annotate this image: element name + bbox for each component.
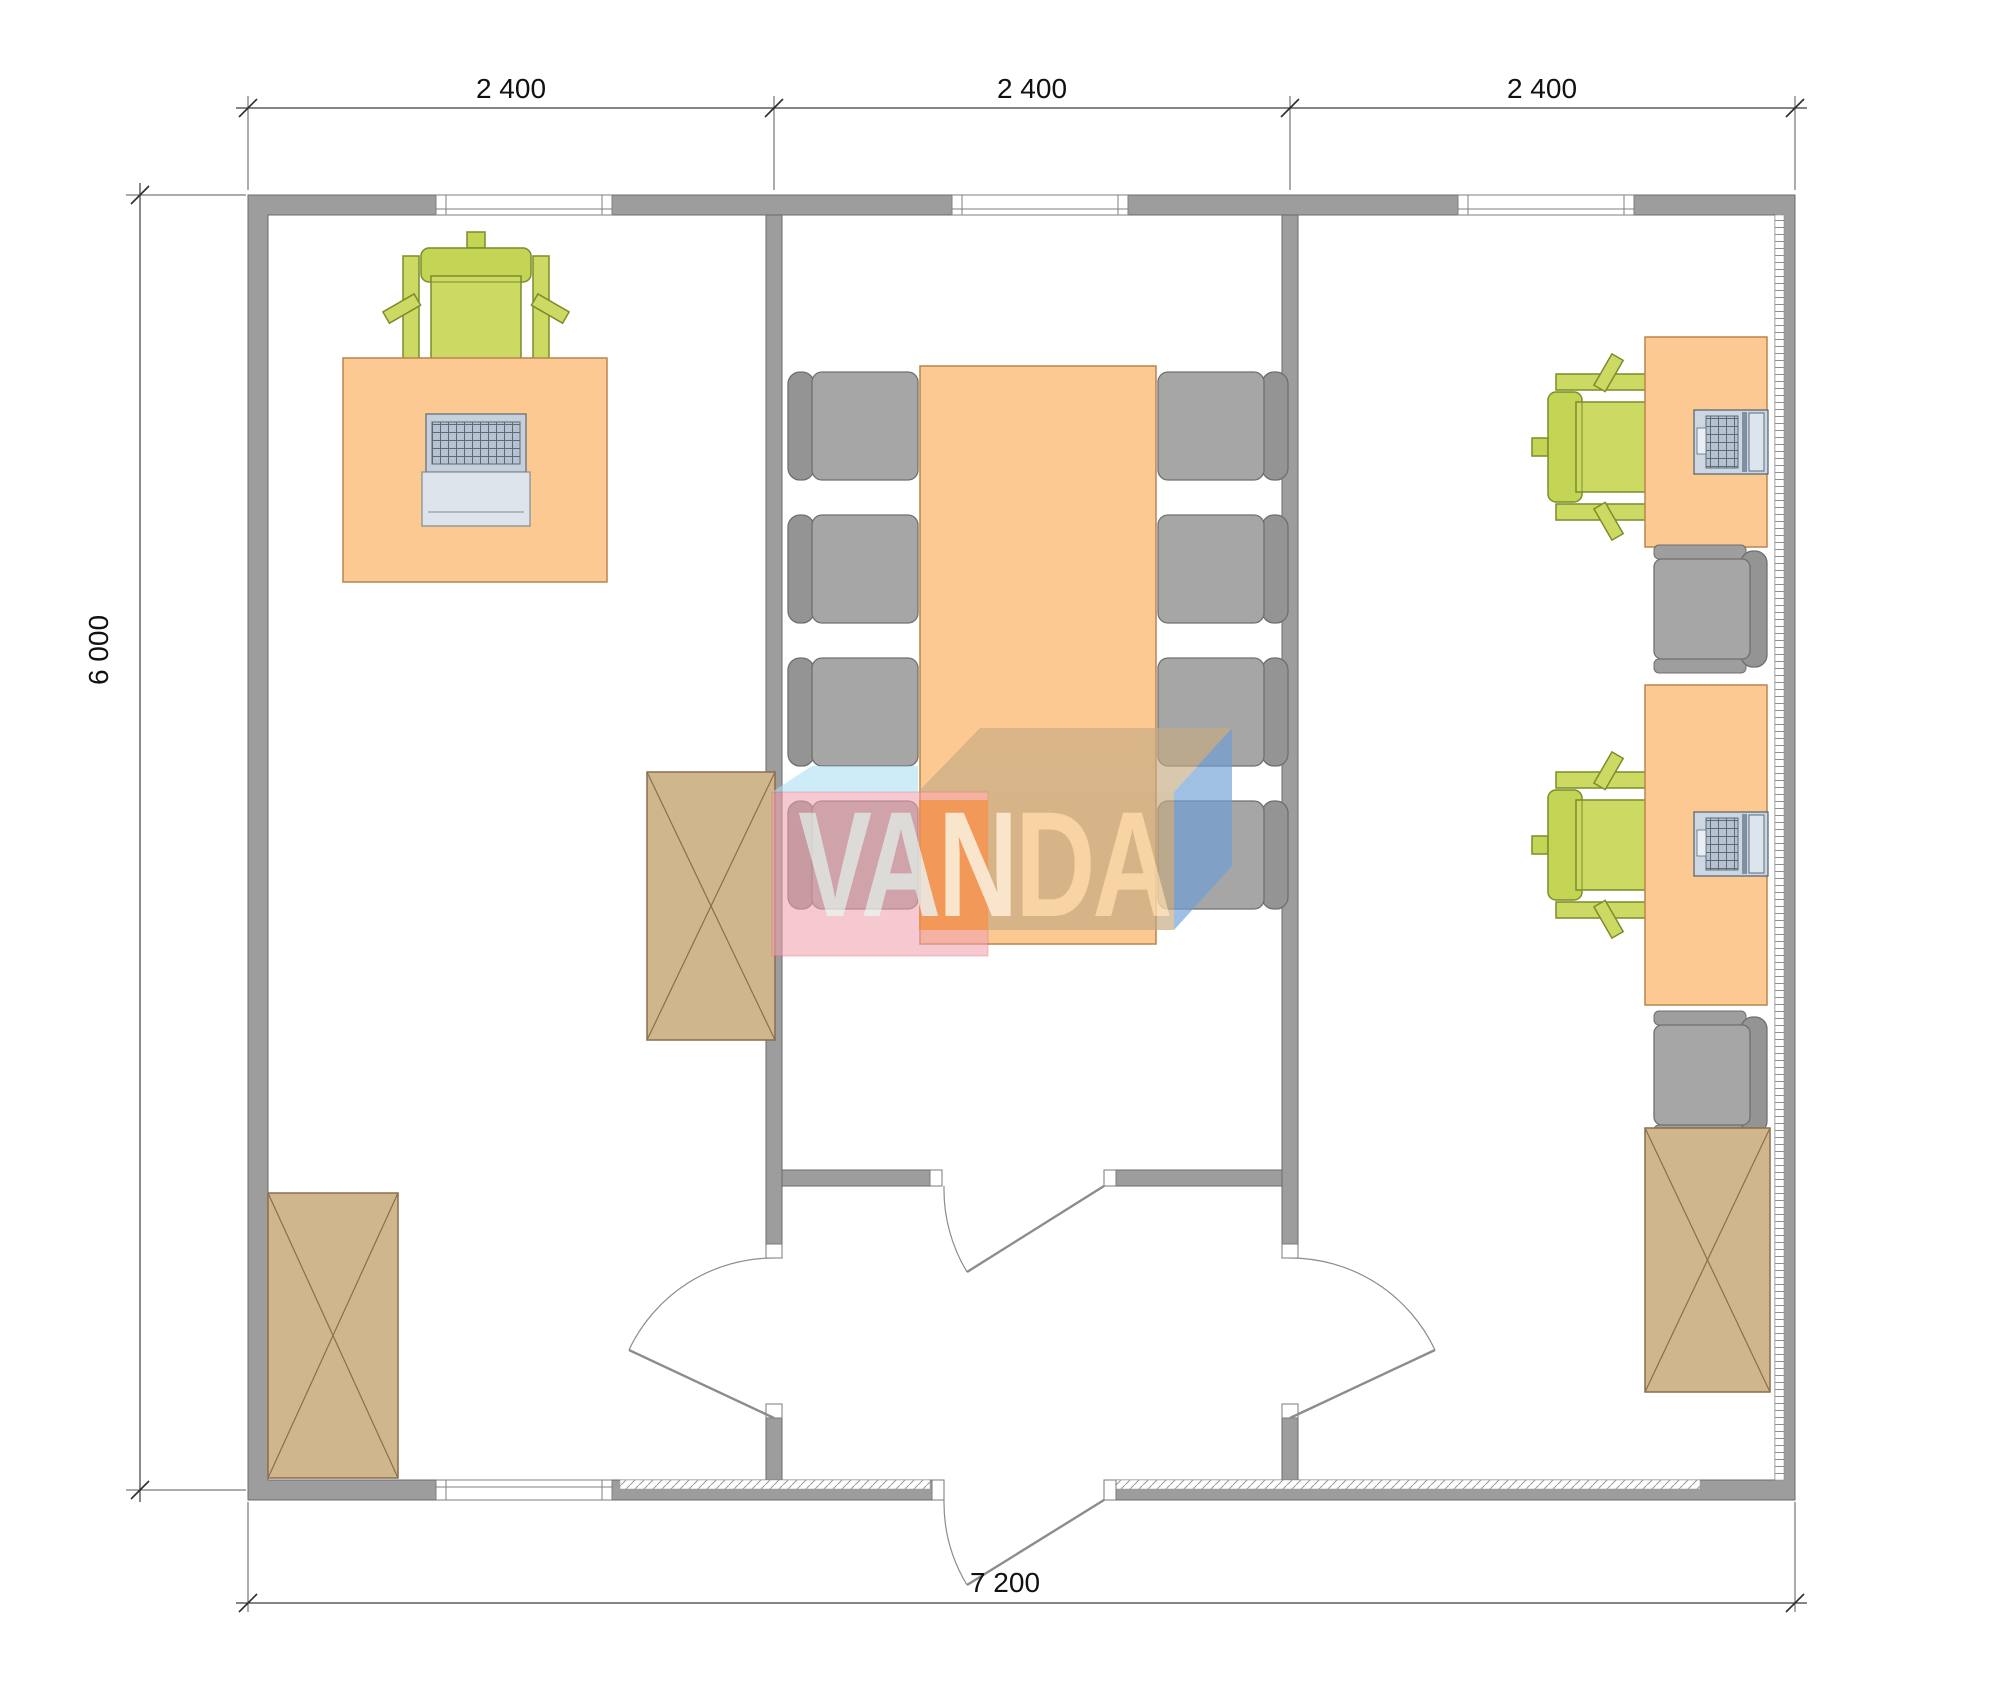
task-chair-icon — [1654, 545, 1767, 673]
conference-chair-icon — [1158, 515, 1288, 623]
bottom-dimension: 7 200 — [236, 1502, 1807, 1612]
left-office — [268, 232, 775, 1478]
conference-chair-icon — [788, 658, 918, 766]
entrance-opening — [944, 1478, 1104, 1502]
floor-plan-page: VANDA 2 400 2 400 2 400 6 000 7 200 — [0, 0, 2000, 1704]
left-room-door — [629, 1258, 774, 1418]
top-dimension: 2 400 2 400 2 400 — [236, 73, 1807, 190]
vestibule-door — [944, 1186, 1104, 1272]
floor-plan-drawing: VANDA 2 400 2 400 2 400 6 000 7 200 — [0, 0, 2000, 1704]
right-room-door — [1290, 1258, 1435, 1418]
vestibule-wall-right — [1116, 1170, 1282, 1186]
laptop-icon — [1694, 812, 1768, 876]
right-wall-hatch-strip — [1775, 215, 1784, 1480]
door-jamb — [766, 1244, 782, 1258]
door-jamb — [930, 1170, 942, 1186]
window-top-right — [1458, 195, 1634, 215]
conference-chair-icon — [1158, 372, 1288, 480]
keyboard-tray-icon — [422, 414, 530, 526]
door-jamb — [1104, 1170, 1116, 1186]
watermark-text: VANDA — [798, 781, 1170, 948]
bottom-wall-hatch-left — [620, 1480, 930, 1489]
cabinet-x-icon — [1645, 1128, 1770, 1392]
vestibule-wall-left — [782, 1170, 930, 1186]
left-dimension: 6 000 — [83, 183, 246, 1502]
watermark-da: DA — [1015, 781, 1170, 948]
desk-chair-icon — [383, 232, 569, 362]
partition-wall-right-stub — [1282, 1418, 1298, 1480]
desk-chair-icon — [1532, 752, 1662, 938]
desk-chair-icon — [1532, 354, 1662, 540]
laptop-icon — [1694, 410, 1768, 474]
dim-label-top-3: 2 400 — [1507, 73, 1577, 104]
door-jamb — [1104, 1480, 1116, 1500]
bottom-wall-hatch-right — [1116, 1480, 1700, 1489]
window-top-left — [436, 195, 612, 215]
door-jamb — [1282, 1244, 1298, 1258]
cabinet-x-icon — [647, 772, 775, 1040]
dim-label-top-1: 2 400 — [476, 73, 546, 104]
door-jamb — [932, 1480, 944, 1500]
window-top-middle — [952, 195, 1128, 215]
dim-label-left: 6 000 — [83, 615, 114, 685]
watermark-n: N — [938, 781, 1015, 948]
right-office — [1532, 337, 1770, 1392]
dim-label-bottom: 7 200 — [970, 1567, 1040, 1598]
cabinet-x-icon — [268, 1193, 398, 1478]
window-bottom-left — [436, 1480, 612, 1500]
conference-chair-icon — [788, 372, 918, 480]
partition-wall-left — [766, 215, 782, 1258]
partition-wall-left-stub — [766, 1418, 782, 1480]
task-chair-icon — [1654, 1011, 1767, 1139]
doors — [629, 1170, 1435, 1585]
conference-chair-icon — [788, 515, 918, 623]
dim-label-top-2: 2 400 — [997, 73, 1067, 104]
watermark-va: VA — [798, 781, 938, 948]
